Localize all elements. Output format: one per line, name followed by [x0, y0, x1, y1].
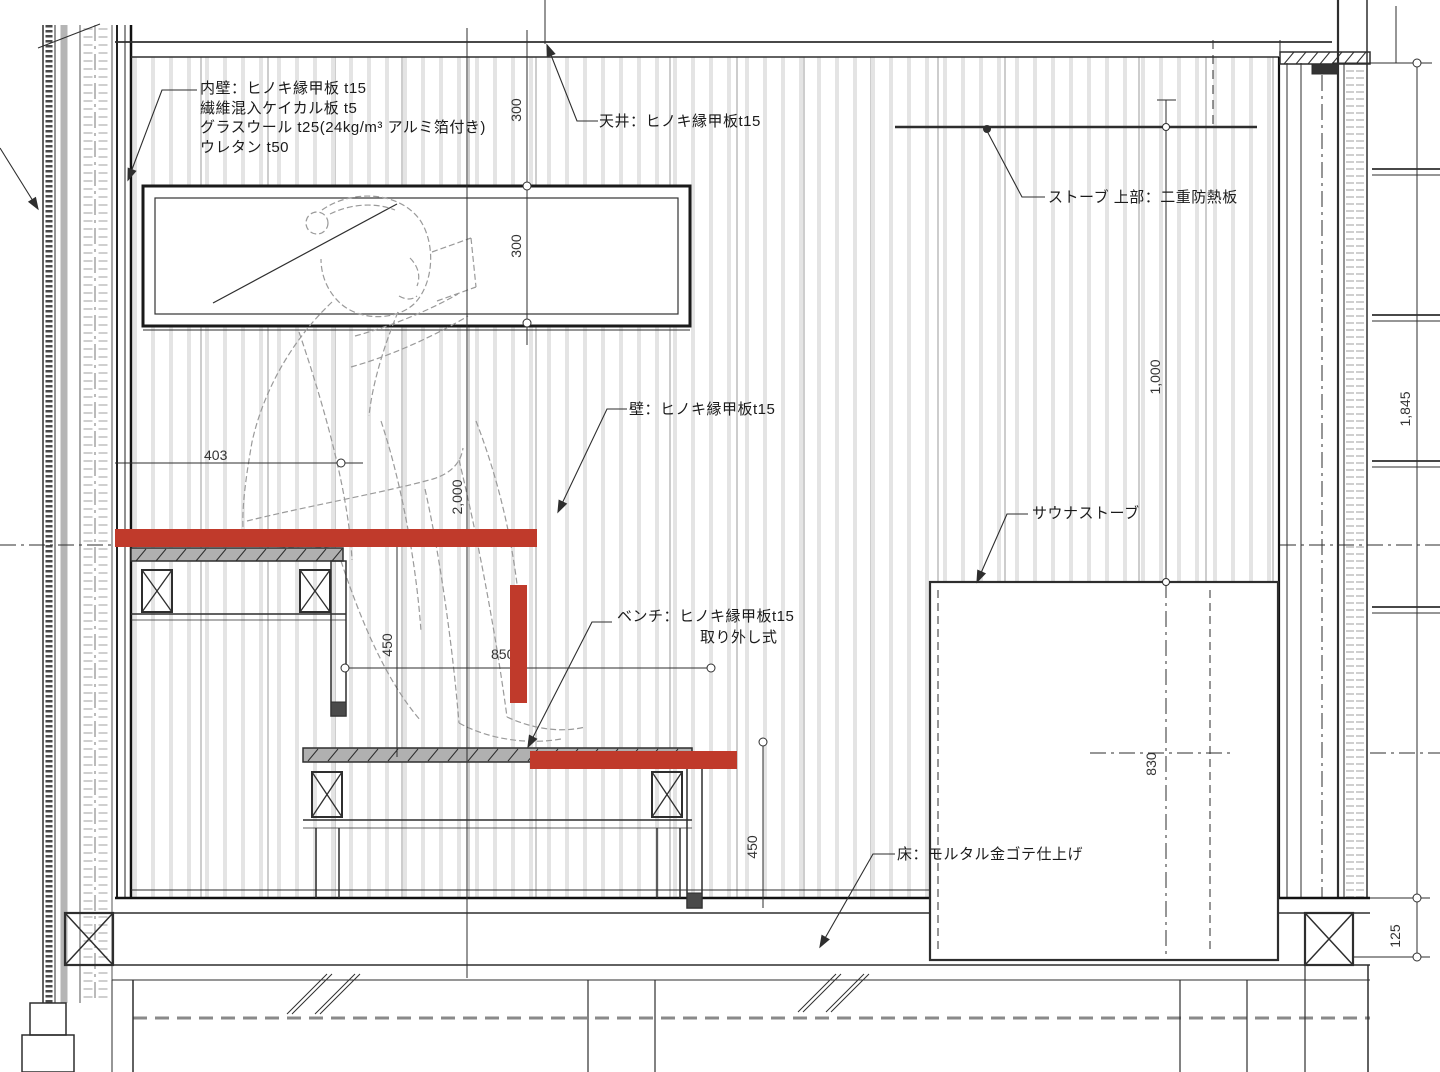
dim-bench-depth: 403	[204, 447, 227, 463]
bench-highlight-vertical	[510, 585, 527, 703]
bench-label-line1: ベンチ：ヒノキ縁甲板t15	[617, 607, 794, 627]
dim-window-height: 300	[508, 206, 524, 286]
inner-wall-spec-line4: ウレタン t50	[200, 138, 486, 158]
sauna-section-drawing: 内壁：ヒノキ縁甲板 t15 繊維混入ケイカル板 t5 グラスウール t25(24…	[0, 0, 1440, 1072]
sauna-stove-label: サウナストーブ	[1032, 504, 1140, 524]
bench-highlight-upper	[115, 529, 537, 547]
bench-label-line2: 取り外し式	[700, 628, 778, 648]
ceiling-lines	[115, 42, 1332, 57]
dim-bench-rise: 450	[379, 605, 395, 685]
dim-ceiling-offset: 300	[508, 70, 524, 150]
floor-label: 床：モルタル金ゴテ仕上げ	[897, 845, 1083, 865]
inner-wall-spec-line1: 内壁：ヒノキ縁甲板 t15	[200, 79, 486, 99]
wall-label: 壁：ヒノキ縁甲板t15	[629, 400, 775, 420]
dim-stove-height: 830	[1143, 724, 1159, 804]
dim-shield-to-stove: 1,000	[1147, 337, 1163, 417]
left-wall-section	[38, 24, 131, 1003]
inner-wall-spec-label: 内壁：ヒノキ縁甲板 t15 繊維混入ケイカル板 t5 グラスウール t25(24…	[200, 79, 486, 157]
inner-wall-spec-line2: 繊維混入ケイカル板 t5	[200, 99, 486, 119]
dim-lower-bench-height: 450	[744, 807, 760, 887]
ceiling-label: 天井：ヒノキ縁甲板t15	[599, 112, 761, 132]
sauna-stove-section	[895, 100, 1278, 960]
bench-highlight-lower	[530, 751, 737, 769]
dim-wall-height: 1,845	[1397, 369, 1413, 449]
leader-lines	[124, 44, 1045, 949]
dim-room-height: 2,000	[449, 457, 465, 537]
window	[143, 186, 690, 330]
inner-wall-spec-line3: グラスウール t25(24kg/m³ アルミ箔付き)	[200, 118, 486, 138]
bench-structures	[131, 548, 702, 908]
stove-upper-label: ストーブ 上部：二重防熱板	[1048, 188, 1238, 208]
dim-floor-depth: 125	[1387, 896, 1403, 976]
